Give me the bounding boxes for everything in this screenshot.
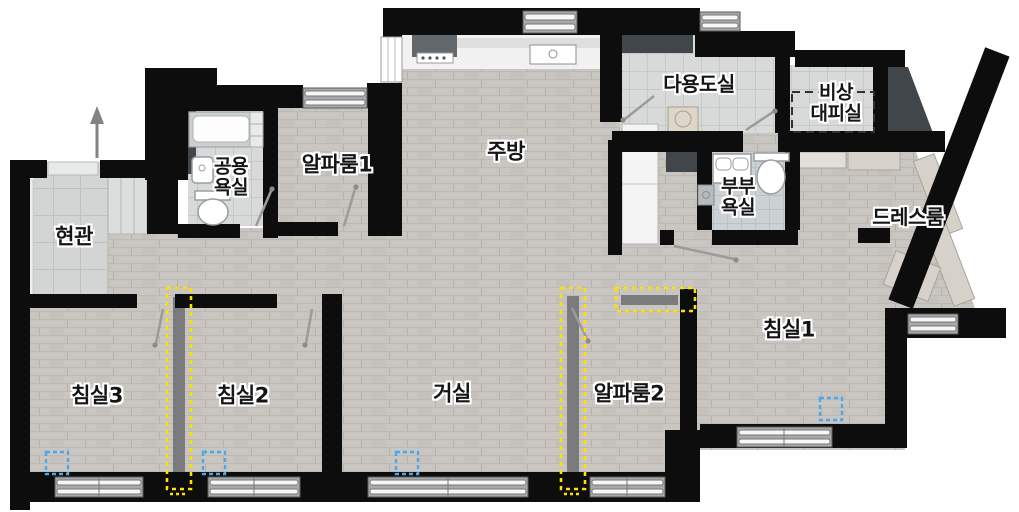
movable-partition <box>567 296 579 485</box>
movable-partition <box>621 295 678 305</box>
window <box>523 11 577 33</box>
kitchen-sink-icon <box>530 45 576 64</box>
window <box>368 477 528 497</box>
window <box>590 477 665 497</box>
bath-shelf <box>250 112 263 147</box>
window <box>303 88 367 108</box>
floor-plan-drawing <box>0 0 1019 512</box>
window <box>908 314 958 334</box>
shelter-floor <box>790 65 877 133</box>
window <box>737 427 832 447</box>
entrance-floor <box>33 162 108 298</box>
entrance-door <box>48 162 98 175</box>
entrance-arrow-icon <box>90 106 104 158</box>
duct-shaft <box>888 67 933 133</box>
entry-closet <box>108 176 147 234</box>
window <box>381 37 402 82</box>
window <box>208 477 300 497</box>
movable-partition <box>173 297 185 484</box>
shower-icon <box>698 185 714 205</box>
window <box>55 477 143 497</box>
window <box>700 12 740 31</box>
floor-plan: 현관 공용 욕실 알파룸1 주방 다용도실 비상 대피실 부부 욕실 드레스룸 … <box>0 0 1019 512</box>
washbasin-icon <box>192 157 213 183</box>
